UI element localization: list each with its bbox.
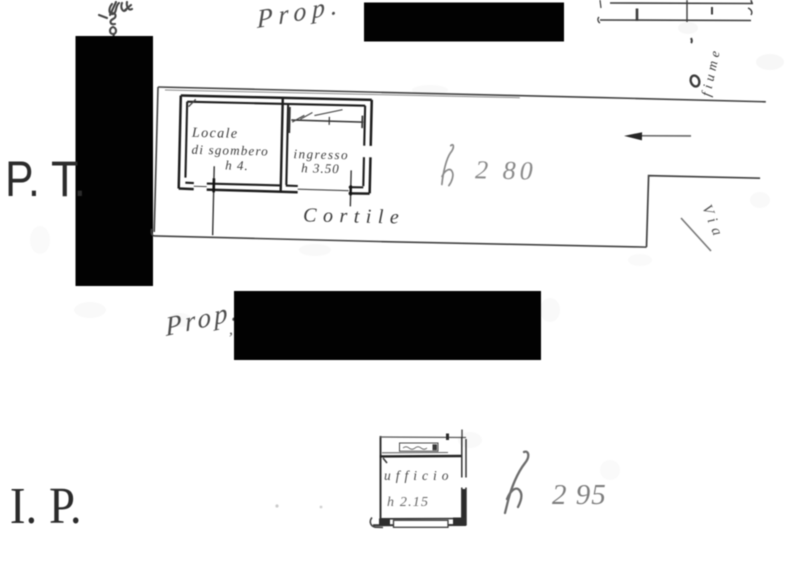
svg-text:P.: P. [5,151,40,207]
svg-text:h 2.15: h 2.15 [387,495,429,510]
svg-text:ufficio: ufficio [384,468,454,483]
svg-text:T.: T. [51,152,86,208]
svg-text:2 95: 2 95 [552,479,607,511]
svg-text:2 80: 2 80 [475,155,537,185]
svg-text:Locale: Locale [191,126,239,142]
svg-text:,: , [229,321,233,338]
svg-text:di sgombero: di sgombero [191,142,269,159]
svg-text:I.: I. [10,477,37,535]
svg-text:h 3.50: h 3.50 [301,160,340,176]
svg-text:P.: P. [49,477,82,535]
svg-text:h 4.: h 4. [225,158,249,174]
svg-text:Cortile: Cortile [303,204,406,228]
